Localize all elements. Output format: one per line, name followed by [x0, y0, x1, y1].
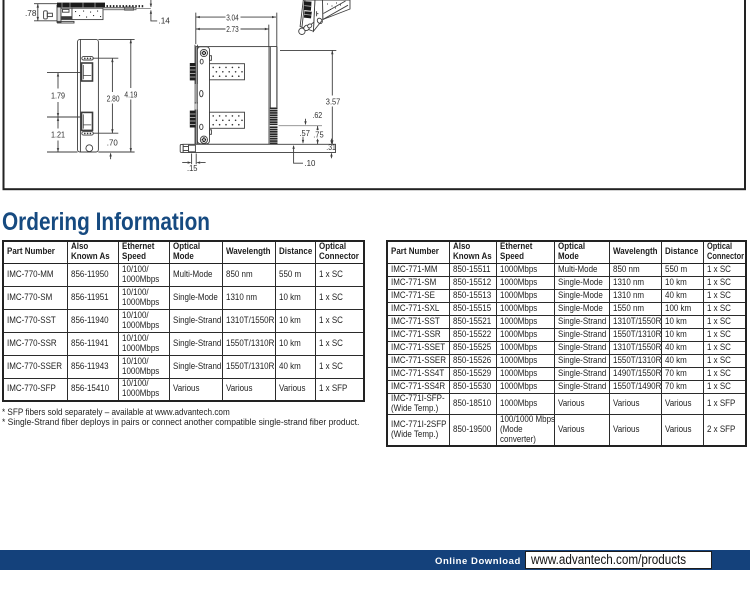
svg-text:.62: .62	[312, 111, 322, 120]
svg-text:.14: .14	[158, 17, 170, 26]
svg-text:.70: .70	[107, 138, 119, 147]
svg-text:.10: .10	[304, 159, 316, 168]
svg-text:.75: .75	[313, 130, 324, 139]
svg-text:2.80: 2.80	[107, 95, 120, 104]
svg-text:.31: .31	[326, 143, 336, 152]
svg-text:.15: .15	[187, 164, 198, 173]
svg-text:.57: .57	[299, 129, 310, 138]
svg-text:4.19: 4.19	[124, 91, 137, 100]
svg-text:1.21: 1.21	[51, 131, 65, 140]
svg-text:.78: .78	[25, 9, 37, 18]
svg-text:2.73: 2.73	[226, 25, 239, 34]
svg-text:1.79: 1.79	[51, 91, 65, 100]
svg-text:3.04: 3.04	[226, 13, 239, 22]
svg-text:3.57: 3.57	[326, 97, 341, 106]
